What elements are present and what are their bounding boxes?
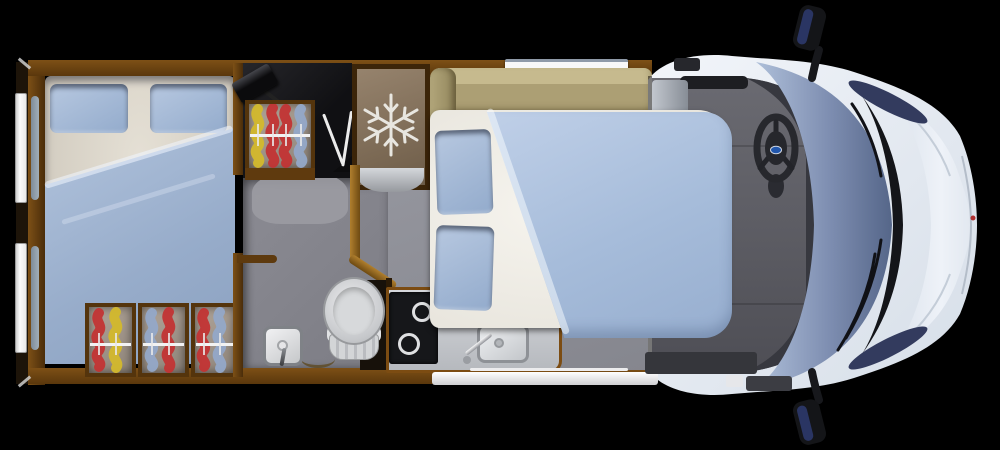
fridge-front-panel [358, 168, 424, 192]
main-bed [430, 110, 732, 336]
bathroom-door-post [350, 165, 360, 260]
under-bed-wardrobe-2 [138, 303, 189, 377]
rear-window-2 [15, 243, 27, 353]
bathroom-stub-wall [237, 255, 277, 263]
rear-window-2-glass [31, 246, 39, 350]
cab-step-white [726, 375, 743, 387]
faucet-knob [463, 356, 471, 364]
bathroom-partition-wall [233, 253, 243, 377]
wardrobe-base [245, 168, 315, 180]
under-bed-wardrobe-1 [85, 303, 136, 377]
main-bed-pillow-1 [435, 129, 494, 215]
rear-bed-pillow-2 [150, 84, 227, 133]
rear-window-1-glass [31, 96, 39, 200]
burner-icon [412, 302, 432, 322]
motorhome-floorplan [0, 0, 1000, 450]
rear-window-1 [15, 93, 27, 203]
entry-step [432, 372, 658, 385]
front-badge-dot [971, 216, 976, 221]
rear-bed-pillow-1 [50, 84, 128, 133]
burner-icon [398, 333, 420, 355]
sink-drain [494, 338, 504, 348]
toilet-seat [333, 287, 375, 335]
under-bed-wardrobe-3 [191, 303, 239, 377]
door-sill-cabinet [645, 352, 757, 374]
cab-step-dark [746, 376, 792, 391]
wardrobe-hangers [245, 100, 315, 172]
door-sill-top [680, 76, 748, 89]
main-bed-pillow-2 [434, 225, 495, 311]
counter-chrome-rail [470, 368, 628, 371]
roof-vent [674, 58, 700, 71]
